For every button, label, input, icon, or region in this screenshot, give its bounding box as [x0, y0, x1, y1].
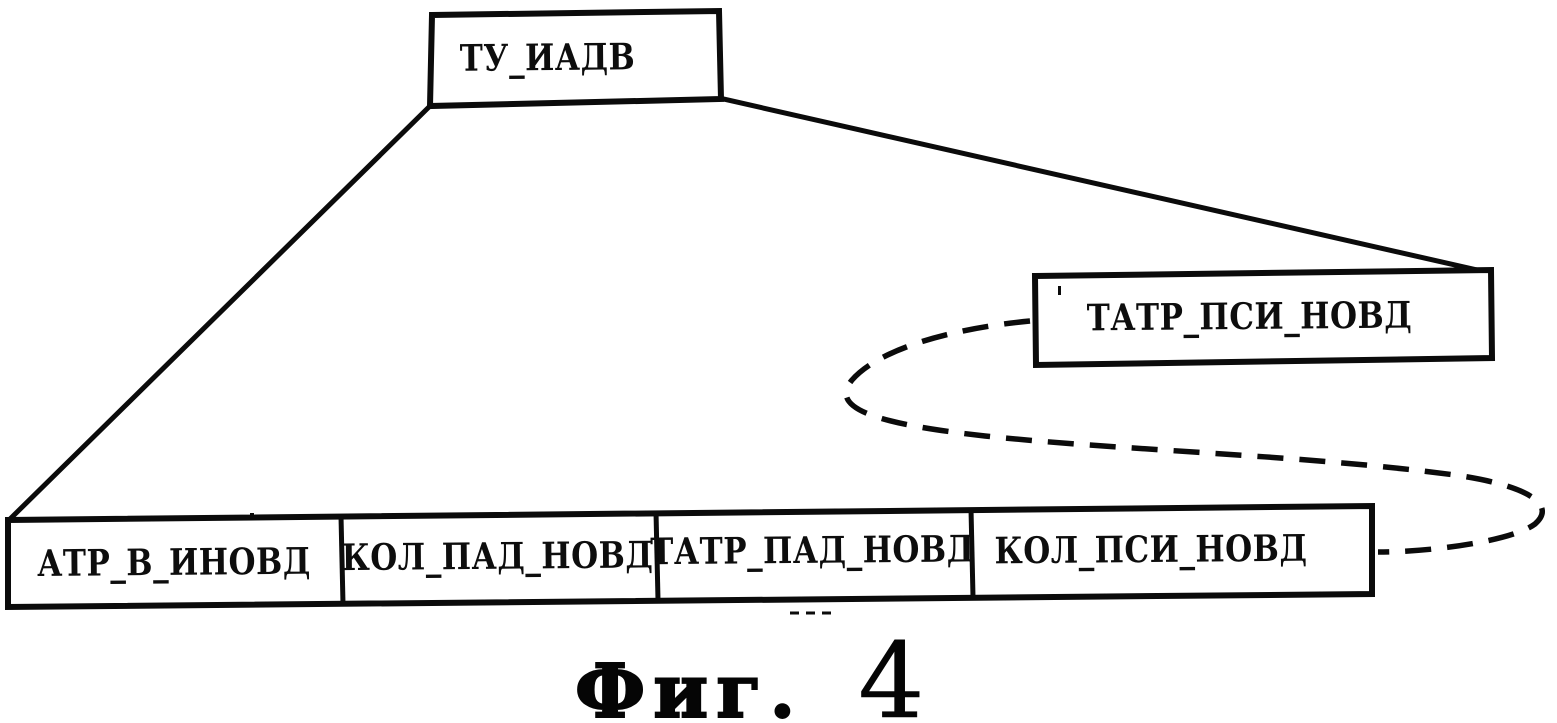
- side-box: ТАТР_ПСИ_НОВД: [1035, 270, 1493, 364]
- figure-caption-text: Фиг.: [575, 649, 803, 723]
- root-box: ТУ_ИАДВ: [432, 12, 720, 105]
- figure-caption: Фиг. 4: [575, 620, 924, 723]
- side-box-label: ТАТР_ПСИ_НОВД: [1087, 294, 1413, 339]
- figure-caption-number: 4: [858, 620, 924, 723]
- table-cell-atr-v-inovd: АТР_В_ИНОВД: [8, 519, 341, 608]
- diagram-linework: [0, 0, 1557, 723]
- root-box-label: ТУ_ИАДВ: [460, 36, 636, 80]
- table-cell-label: АТР_В_ИНОВД: [37, 541, 311, 586]
- table-cell-label: ТАТР_ПАД_НОВД: [650, 528, 975, 573]
- patent-figure-canvas: ТУ_ИАДВ ТАТР_ПСИ_НОВД АТР_В_ИНОВД КОЛ_ПА…: [0, 0, 1557, 723]
- table-cell-tatr-pad-novd: ТАТР_ПАД_НОВД: [655, 507, 971, 596]
- edge-root-to-table-left: [9, 105, 431, 520]
- table-cell-label: КОЛ_ПСИ_НОВД: [994, 528, 1307, 573]
- table-cell-kol-pad-novd: КОЛ_ПАД_НОВД: [340, 513, 656, 602]
- scan-speck-dot-1: [250, 513, 254, 517]
- table-cell-kol-psi-novd: КОЛ_ПСИ_НОВД: [970, 504, 1373, 596]
- edge-root-to-side-box: [719, 98, 1486, 272]
- table-cell-label: КОЛ_ПАД_НОВД: [341, 534, 653, 579]
